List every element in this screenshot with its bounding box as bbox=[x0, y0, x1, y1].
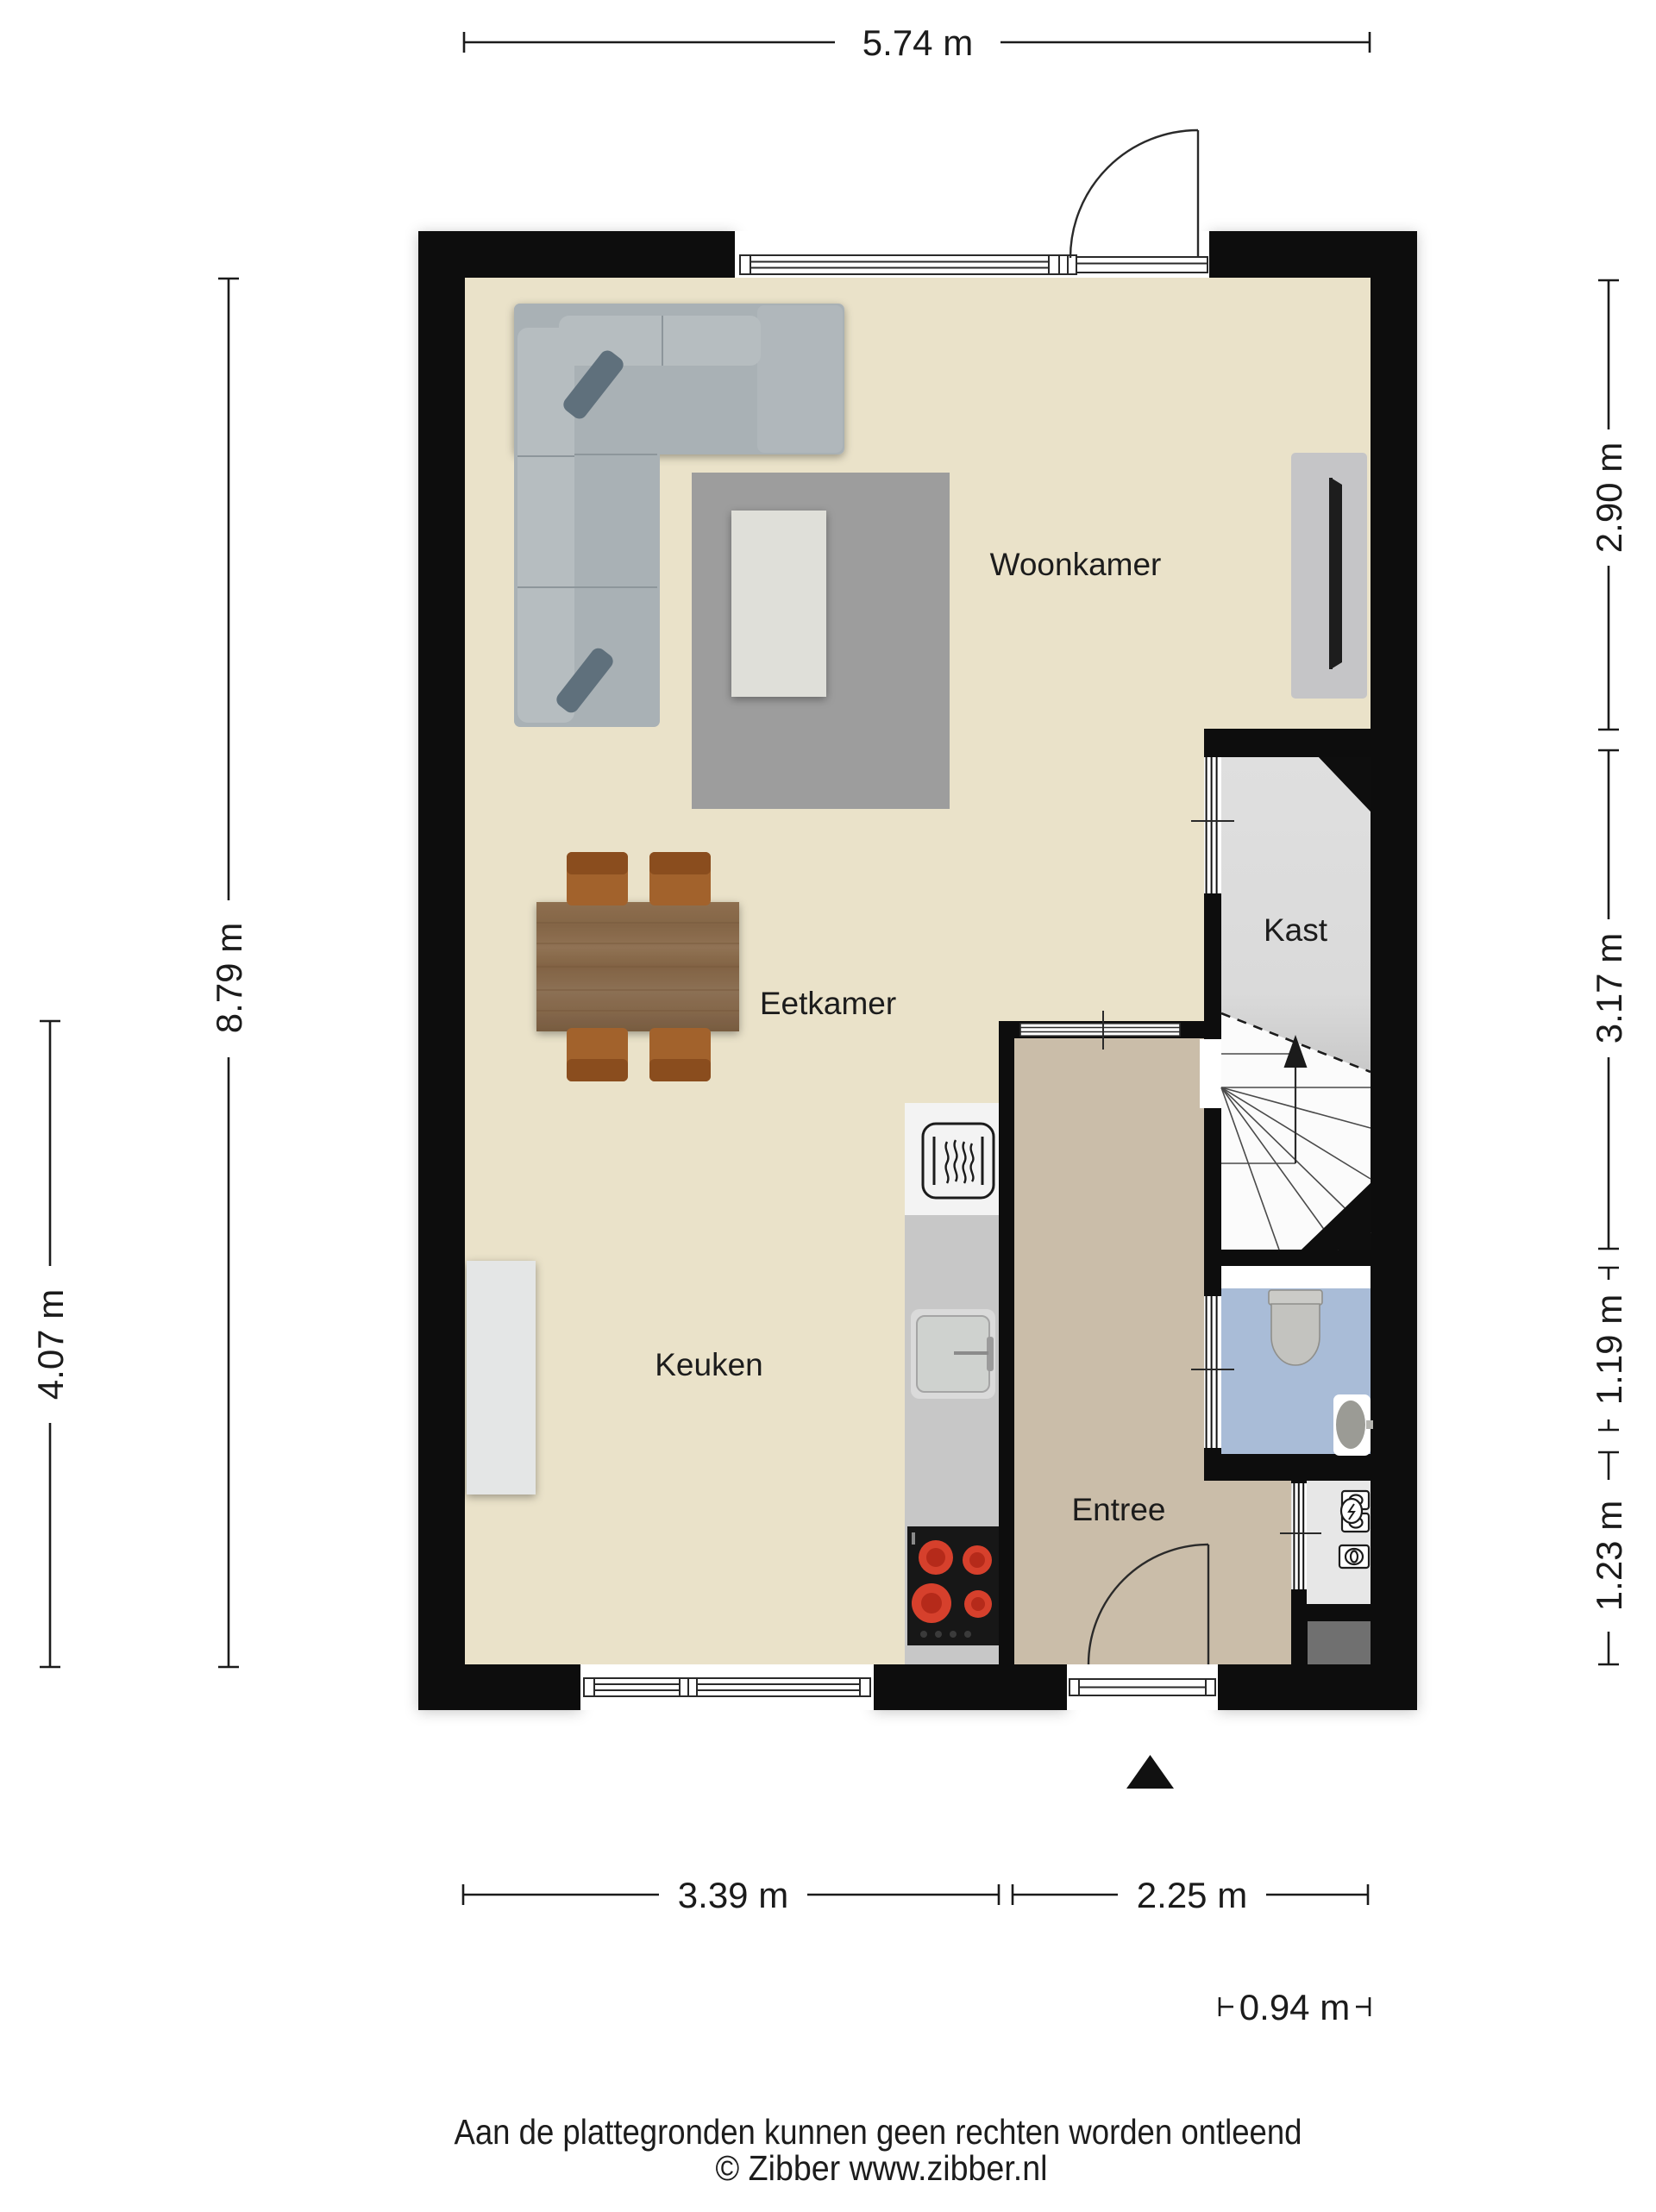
svg-text:0.94 m: 0.94 m bbox=[1239, 1987, 1350, 2027]
svg-text:Eetkamer: Eetkamer bbox=[760, 986, 896, 1021]
svg-text:Entree: Entree bbox=[1071, 1492, 1165, 1527]
svg-text:2.90 m: 2.90 m bbox=[1589, 442, 1629, 553]
svg-text:Aan de plattegronden kunnen ge: Aan de plattegronden kunnen geen rechten… bbox=[455, 2112, 1302, 2152]
svg-text:1.19 m: 1.19 m bbox=[1589, 1294, 1629, 1405]
svg-text:4.07 m: 4.07 m bbox=[30, 1289, 71, 1400]
svg-text:5.74 m: 5.74 m bbox=[862, 22, 973, 63]
svg-text:3.17 m: 3.17 m bbox=[1589, 933, 1629, 1043]
svg-text:8.79 m: 8.79 m bbox=[209, 923, 249, 1033]
svg-text:Kast: Kast bbox=[1264, 912, 1328, 948]
svg-text:2.25 m: 2.25 m bbox=[1137, 1875, 1247, 1915]
svg-text:Keuken: Keuken bbox=[655, 1347, 763, 1382]
svg-text:© Zibber www.zibber.nl: © Zibber www.zibber.nl bbox=[716, 2148, 1048, 2188]
svg-text:3.39 m: 3.39 m bbox=[678, 1875, 788, 1915]
svg-text:Woonkamer: Woonkamer bbox=[990, 547, 1162, 582]
svg-text:1.23 m: 1.23 m bbox=[1589, 1501, 1629, 1611]
